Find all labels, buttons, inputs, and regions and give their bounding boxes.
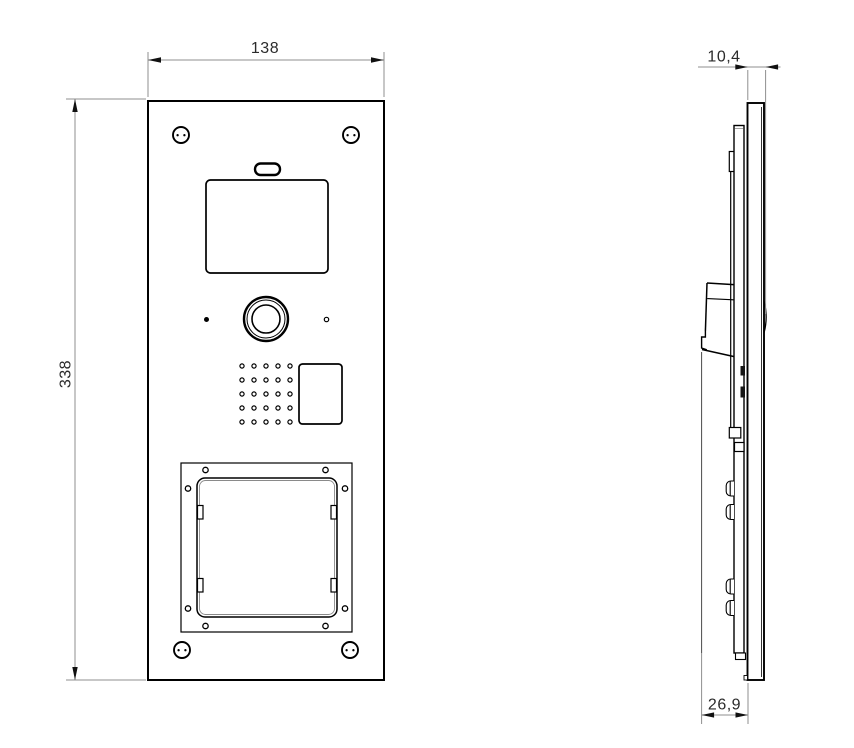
front-view bbox=[148, 101, 384, 680]
dimension-height-label: 338 bbox=[58, 360, 75, 388]
module-mounting-frame bbox=[181, 463, 352, 632]
rear-screw-bump bbox=[726, 579, 734, 594]
camera-lens bbox=[244, 297, 288, 341]
security-screw-bottom-left bbox=[174, 642, 190, 658]
dimension-width: 138 bbox=[148, 40, 384, 97]
drawing-canvas: 138 338 10,4 26,9 bbox=[0, 0, 854, 748]
frame-screw-hole bbox=[185, 606, 190, 611]
display-window bbox=[206, 180, 328, 273]
clip bbox=[331, 506, 337, 520]
dimension-height: 338 bbox=[58, 99, 147, 680]
security-screw-top-right bbox=[343, 127, 359, 143]
camera-bracket bbox=[702, 283, 734, 357]
housing-foot bbox=[736, 653, 746, 660]
technical-drawing: 138 338 10,4 26,9 bbox=[0, 0, 854, 748]
rear-screw-bump bbox=[726, 481, 734, 496]
clip bbox=[198, 506, 204, 520]
dimension-thickness-label: 10,4 bbox=[707, 49, 740, 66]
internal-part bbox=[741, 366, 746, 376]
side-view bbox=[702, 103, 767, 680]
clip bbox=[198, 579, 204, 593]
module-window bbox=[197, 478, 337, 617]
frame-screw-hole bbox=[342, 486, 347, 491]
status-led-right bbox=[324, 317, 328, 321]
frame-screw-hole bbox=[203, 467, 208, 472]
call-button bbox=[299, 364, 342, 424]
mic-slot bbox=[255, 164, 280, 176]
dimension-depth-label: 26,9 bbox=[708, 697, 741, 714]
dimension-width-label: 138 bbox=[251, 40, 279, 57]
security-screw-bottom-right bbox=[342, 642, 358, 658]
frame-screw-hole bbox=[185, 486, 190, 491]
frame-screw-hole bbox=[203, 623, 208, 628]
dimension-depth: 26,9 bbox=[702, 653, 748, 724]
rear-screw-bump bbox=[726, 505, 734, 520]
frame-screw-hole bbox=[323, 467, 328, 472]
rear-screw-bump bbox=[726, 601, 734, 616]
status-led-left bbox=[204, 317, 209, 322]
frame-screw-hole bbox=[342, 606, 347, 611]
frame-screw-hole bbox=[323, 623, 328, 628]
plate-bottom-step bbox=[744, 676, 748, 681]
internal-part bbox=[741, 387, 746, 398]
security-screw-top-left bbox=[173, 127, 189, 143]
clip bbox=[331, 579, 337, 593]
